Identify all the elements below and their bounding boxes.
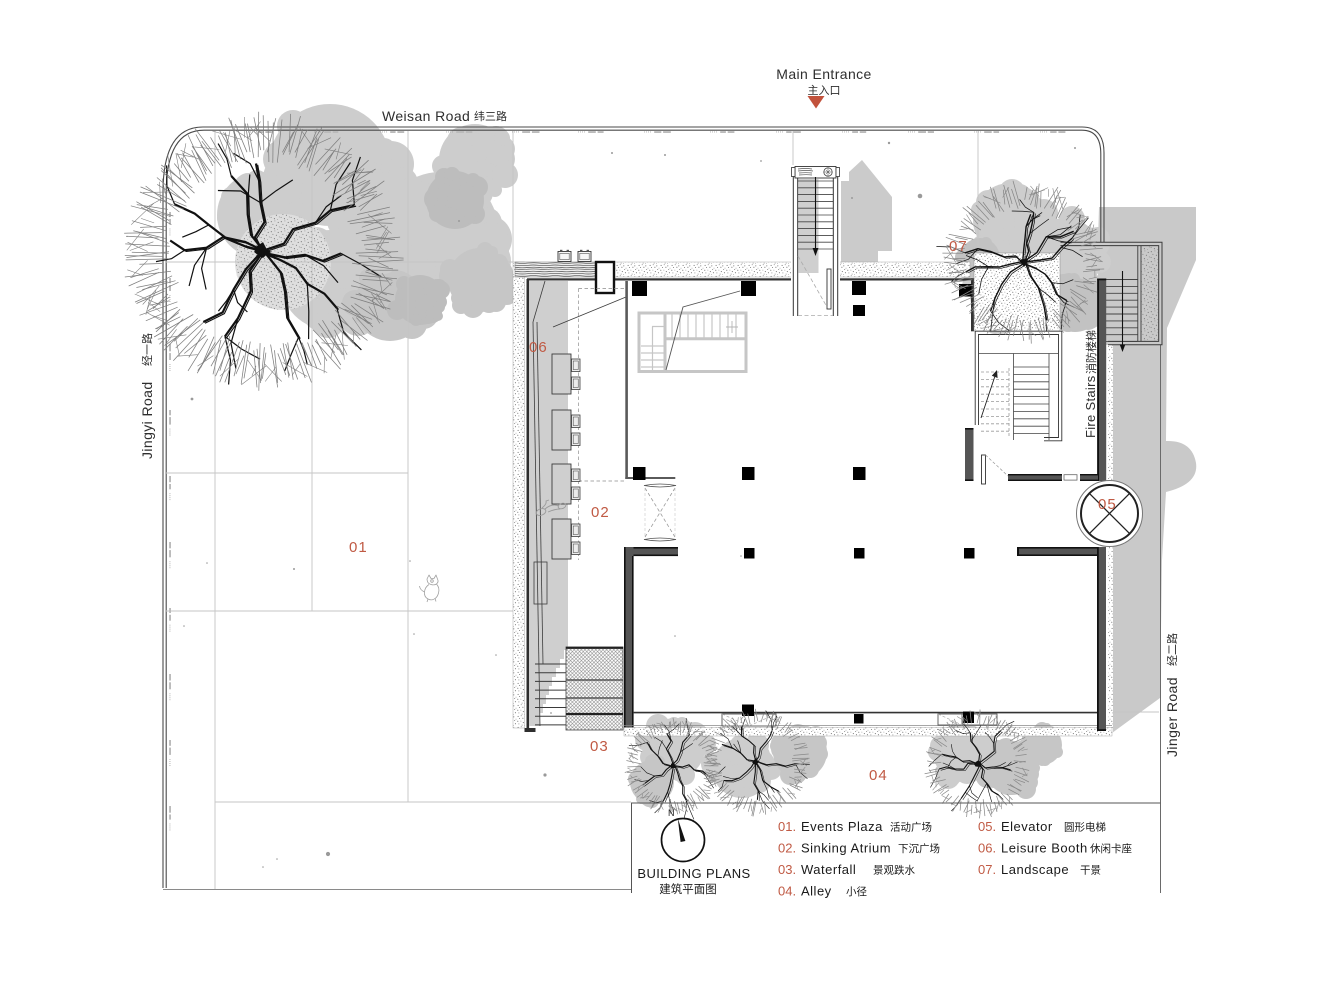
svg-text:07.: 07. [978,862,996,877]
svg-text:06.: 06. [978,841,996,856]
svg-text:06: 06 [529,339,548,356]
svg-text:圆形电梯: 圆形电梯 [1064,821,1106,834]
svg-text:Jinger Road: Jinger Road [1164,677,1180,757]
svg-text:01: 01 [349,539,368,556]
svg-text:05: 05 [1098,496,1117,513]
svg-text:休闲卡座: 休闲卡座 [1090,842,1132,855]
svg-text:干景: 干景 [1080,865,1101,877]
svg-text:Fire Stairs: Fire Stairs [1083,375,1098,438]
svg-text:Weisan Road: Weisan Road [382,108,470,124]
svg-text:03.: 03. [778,862,796,877]
svg-text:04: 04 [869,767,888,784]
svg-text:主入口: 主入口 [808,84,841,97]
svg-text:消防楼梯: 消防楼梯 [1084,330,1098,374]
svg-text:Sinking Atrium: Sinking Atrium [801,841,891,856]
svg-text:Jingyi Road: Jingyi Road [139,381,155,459]
svg-text:小径: 小径 [846,885,867,898]
svg-text:N: N [668,808,675,818]
svg-text:Events Plaza: Events Plaza [801,819,883,834]
svg-text:Elevator: Elevator [1001,819,1053,834]
svg-text:活动广场: 活动广场 [890,821,932,834]
svg-text:Leisure Booth: Leisure Booth [1001,841,1088,856]
svg-text:纬三路: 纬三路 [474,110,507,123]
svg-text:Main Entrance: Main Entrance [776,66,871,82]
svg-text:建筑平面图: 建筑平面图 [659,882,717,896]
svg-text:BUILDING PLANS: BUILDING PLANS [637,866,750,881]
svg-text:经二路: 经二路 [1166,633,1179,666]
svg-text:01.: 01. [778,819,796,834]
svg-text:经一路: 经一路 [141,333,154,366]
svg-text:02.: 02. [778,841,796,856]
svg-text:03: 03 [590,738,609,755]
svg-text:Landscape: Landscape [1001,862,1069,877]
svg-text:景观跌水: 景观跌水 [873,864,915,877]
svg-text:04.: 04. [778,884,796,899]
svg-text:下沉广场: 下沉广场 [898,842,940,855]
svg-text:Alley: Alley [801,884,832,899]
svg-text:05.: 05. [978,819,996,834]
svg-text:07: 07 [949,238,968,255]
svg-text:02: 02 [591,504,610,521]
svg-text:Waterfall: Waterfall [801,862,856,877]
